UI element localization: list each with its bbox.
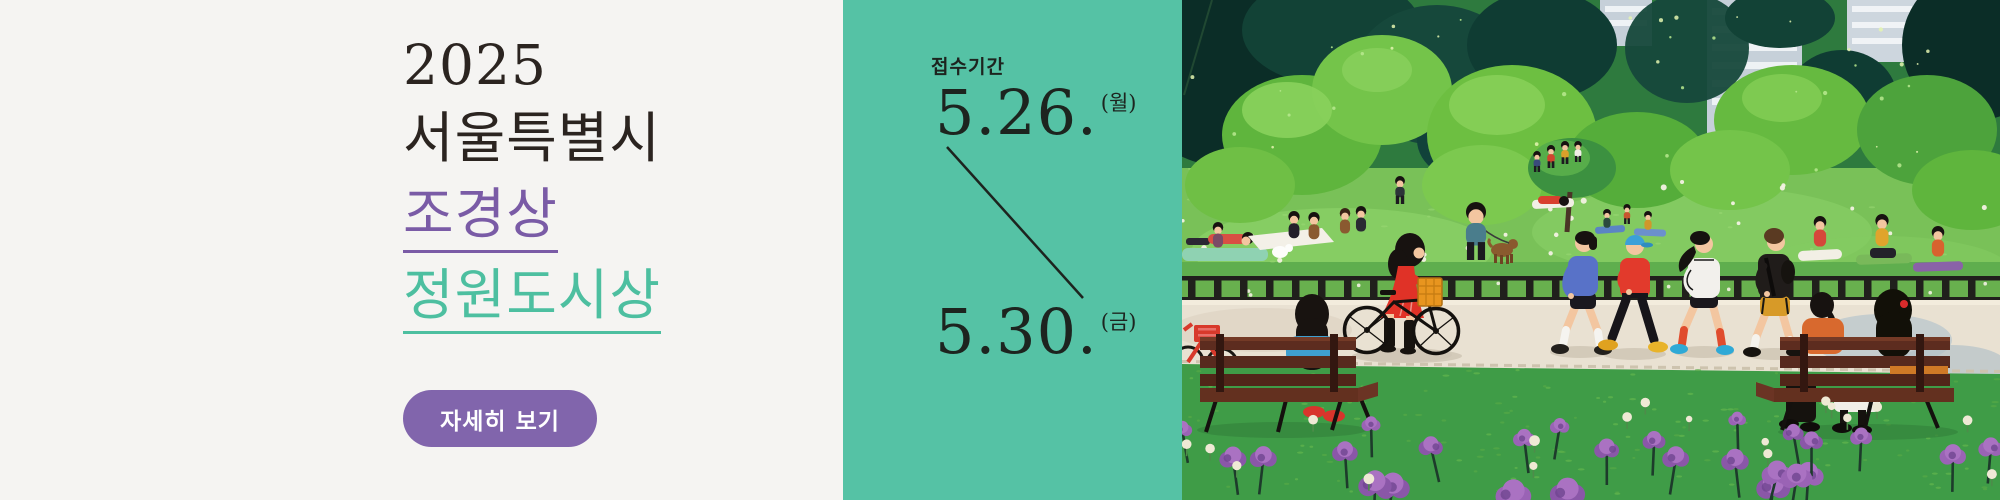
event-banner: 2025 서울특별시 조경상 정원도시상 자세히 보기 접수기간 5.26. (…: [0, 0, 2000, 500]
title-award-garden-city: 정원도시상: [403, 266, 661, 334]
title-panel: 2025 서울특별시 조경상 정원도시상 자세히 보기: [0, 0, 843, 500]
park-illustration: [1182, 0, 2000, 500]
period-diagonal-line: [843, 0, 1182, 500]
page-title: 2025 서울특별시 조경상 정원도시상: [403, 36, 661, 334]
title-year: 2025: [403, 36, 661, 94]
application-period-panel: 접수기간 5.26. (월) 5.30. (금): [843, 0, 1182, 500]
period-label: 접수기간: [931, 52, 1005, 79]
title-city: 서울특별시: [403, 109, 661, 167]
period-start-date: 5.26. (월): [935, 82, 1136, 144]
period-end-date: 5.30. (금): [935, 301, 1136, 363]
title-award-landscape: 조경상: [403, 185, 558, 253]
details-button[interactable]: 자세히 보기: [403, 390, 597, 447]
